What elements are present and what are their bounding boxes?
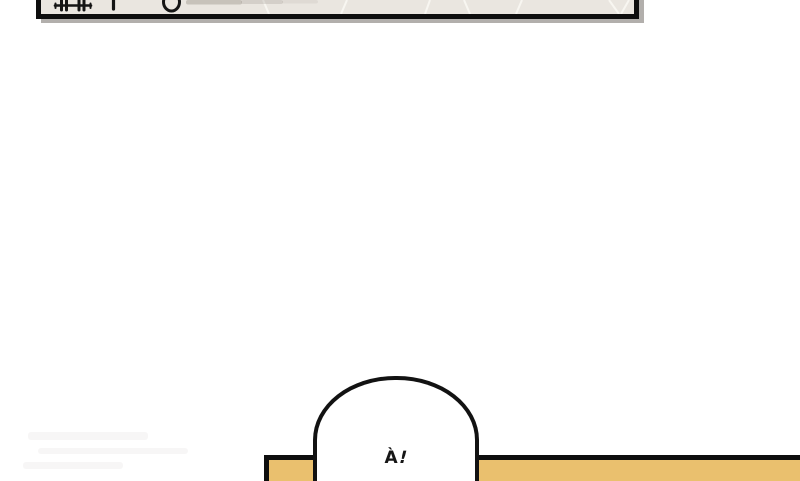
speech-text: À! [317, 450, 475, 467]
comic-page: À! [0, 0, 800, 481]
faint-print-artifact [8, 430, 238, 478]
head-dome: À! [313, 376, 479, 481]
top-comic-panel [36, 0, 639, 19]
